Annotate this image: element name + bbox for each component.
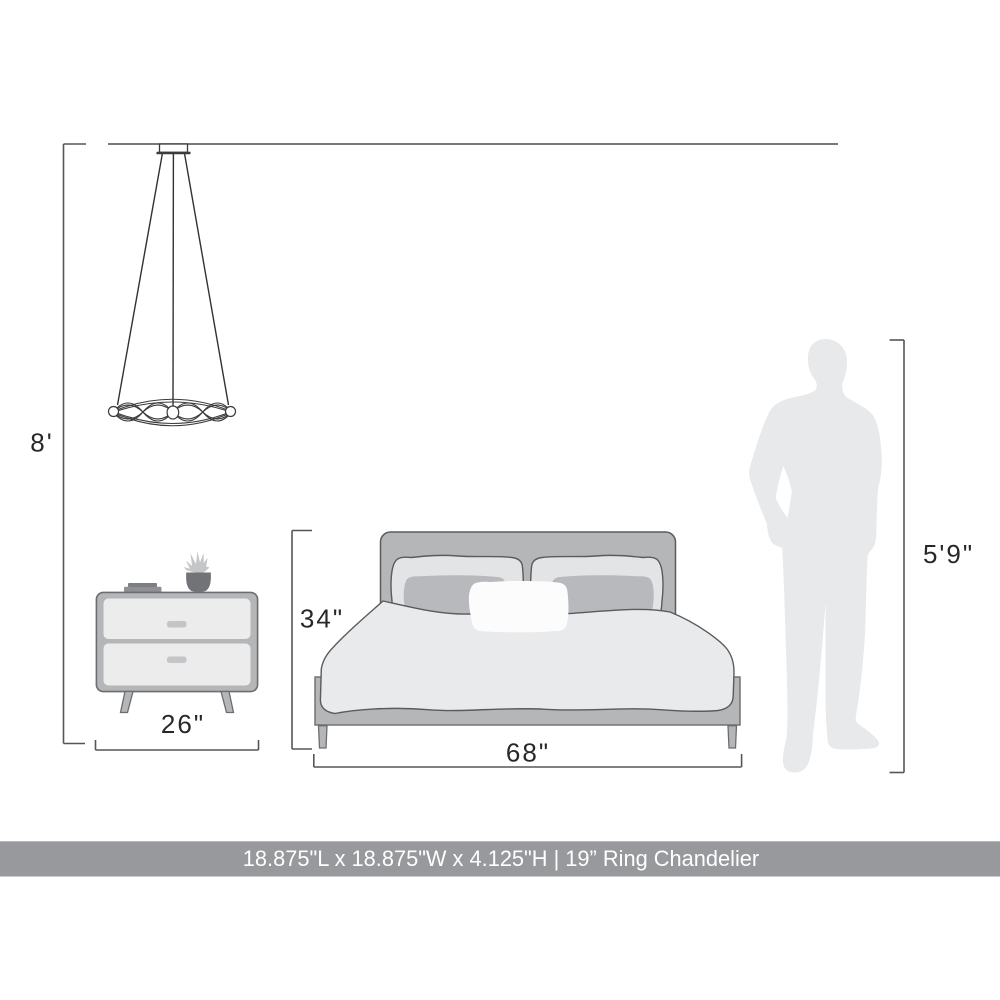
svg-text:34": 34" [300,604,344,634]
svg-text:18.875"L x 18.875"W x 4.125"H: 18.875"L x 18.875"W x 4.125"H | 19” Ring… [243,846,759,871]
svg-text:68": 68" [506,738,550,768]
svg-text:8': 8' [30,428,53,458]
svg-text:26": 26" [161,709,205,739]
svg-text:5'9": 5'9" [923,539,974,569]
